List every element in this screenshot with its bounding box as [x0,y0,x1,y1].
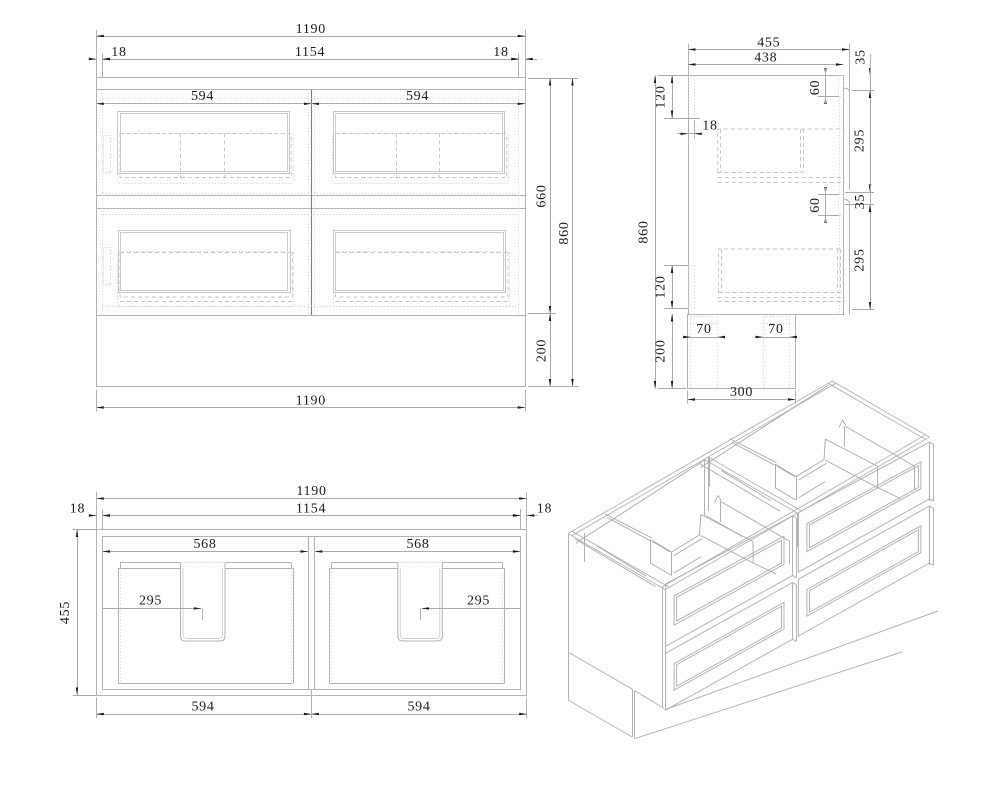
svg-text:455: 455 [58,601,73,624]
svg-text:295: 295 [467,594,490,609]
svg-text:200: 200 [535,339,550,362]
svg-text:455: 455 [757,36,780,51]
svg-text:1154: 1154 [296,502,326,517]
svg-text:60: 60 [808,80,823,95]
svg-text:35: 35 [854,49,869,64]
svg-text:18: 18 [493,45,508,60]
svg-text:860: 860 [637,220,652,243]
svg-text:18: 18 [537,502,552,517]
svg-text:594: 594 [191,700,214,715]
svg-text:568: 568 [193,537,216,552]
svg-text:295: 295 [853,248,868,271]
svg-text:594: 594 [191,89,214,104]
svg-text:300: 300 [730,385,753,400]
svg-text:660: 660 [535,184,550,207]
svg-text:70: 70 [768,322,783,337]
svg-text:18: 18 [702,119,717,134]
svg-text:1190: 1190 [296,394,326,409]
svg-text:1190: 1190 [296,484,326,499]
svg-text:594: 594 [406,89,429,104]
svg-text:120: 120 [654,275,669,298]
svg-text:295: 295 [139,594,162,609]
svg-text:18: 18 [111,45,126,60]
svg-text:860: 860 [557,221,572,244]
svg-text:60: 60 [808,197,823,212]
svg-text:295: 295 [853,129,868,152]
svg-text:1154: 1154 [295,45,325,60]
svg-text:438: 438 [754,51,777,66]
svg-text:18: 18 [70,502,85,517]
svg-text:594: 594 [407,700,430,715]
svg-text:200: 200 [654,339,669,362]
svg-text:1190: 1190 [296,22,326,37]
svg-text:35: 35 [853,194,868,209]
svg-text:568: 568 [406,537,429,552]
svg-text:70: 70 [696,322,711,337]
